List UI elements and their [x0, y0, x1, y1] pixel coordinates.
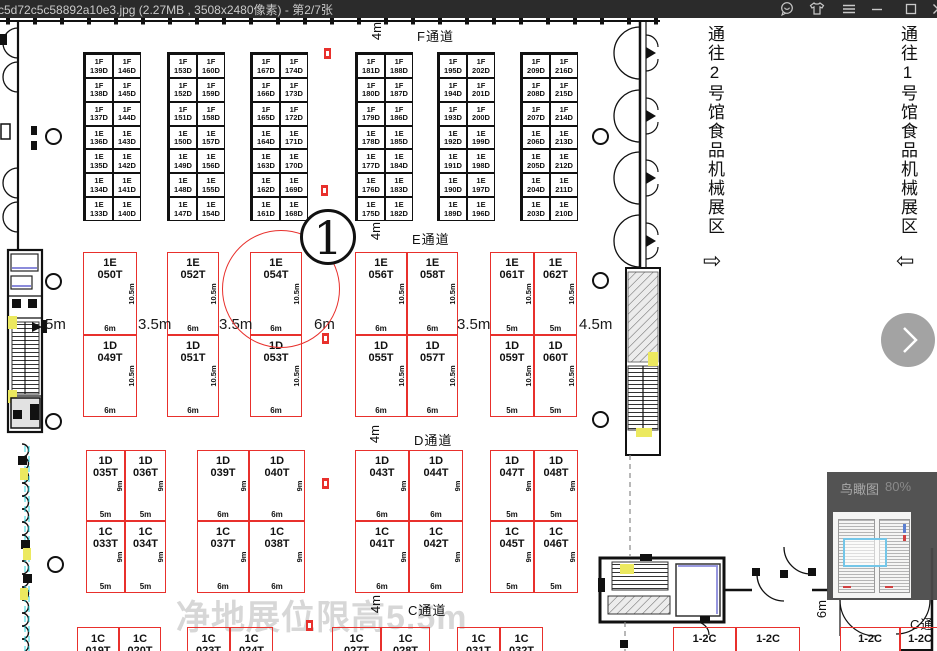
booth-depth-label: 10.5m [397, 365, 406, 386]
booth-cell: 1E205D [522, 149, 550, 173]
booth-cell: 1E185D [385, 126, 413, 150]
booth-label: 1C037T [198, 526, 248, 550]
booth-cell: 1F160D [197, 54, 225, 78]
fire-hydrant-icon [306, 620, 313, 631]
navigator-viewport-rect[interactable] [843, 538, 887, 567]
booth-label: 1E058T [408, 257, 457, 281]
booth-label: 1C038T [250, 526, 304, 550]
booth-label: 1D060T [535, 340, 576, 364]
booth-cell: 1F151D [169, 102, 197, 126]
booth-depth-label: 9m [568, 480, 577, 491]
window-title: c5d72c5c58892a10e3.jpg (2.27MB , 3508x24… [0, 1, 333, 18]
booth-cell: 1F152D [169, 78, 197, 102]
booth-width-label: 5m [87, 582, 124, 591]
booth-width-label: 5m [491, 324, 533, 333]
booth-depth-label: 9m [115, 480, 124, 491]
booth-cell: 1E143D [113, 126, 141, 150]
booth-cell: 1C038T9m6m [249, 521, 305, 593]
image-viewer-window: 净地展位限高5.5m 4m F通道 4m E通道 4m D通道 4m C通道 6… [0, 0, 937, 651]
booth-label: 1D059T [491, 340, 533, 364]
booth-width-label: 6m [408, 406, 457, 415]
booth-cell: 1D043T9m6m [355, 450, 409, 521]
booth-cell: 1E141D [113, 173, 141, 197]
booth-label: 1-2C [841, 633, 899, 645]
booth-depth-label: 9m [156, 480, 165, 491]
booth-cell: 1E155D [197, 173, 225, 197]
booth-depth-label: 9m [453, 480, 462, 491]
booth-cell: 1D040T9m6m [249, 450, 305, 521]
column-circle [45, 413, 62, 430]
booth-width-label: 6m [410, 582, 462, 591]
booth-label: 1D040T [250, 455, 304, 479]
aisle-d-label: D通道 [414, 430, 452, 449]
title-bar[interactable]: c5d72c5c58892a10e3.jpg (2.27MB , 3508x24… [0, 0, 937, 18]
booth-label: 1C031T [458, 633, 499, 651]
booth-width-label: 5m [126, 582, 165, 591]
thumbnail-blue-mark [903, 524, 906, 533]
booth-depth-label: 10.5m [209, 283, 218, 304]
booth-width-label: 5m [535, 582, 577, 591]
booth-depth-label: 9m [399, 552, 408, 563]
booth-cell: 1F215D [550, 78, 578, 102]
booth-cell: 1C028T [381, 627, 430, 651]
booth-depth-label: 9m [239, 480, 248, 491]
booth-cell: 1D035T9m5m [86, 450, 125, 521]
booth-cell: 1F181D [357, 54, 385, 78]
booth-width-label: 5m [126, 510, 165, 519]
booth-width-label: 6m [198, 510, 248, 519]
booth-cell: 1E176D [357, 173, 385, 197]
booth-label: 1D047T [491, 455, 533, 479]
dimension-label: 3.5m [138, 316, 171, 333]
booth-cell: 1F165D [252, 102, 280, 126]
booth-cell: 1E178D [357, 126, 385, 150]
booth-label: 1E061T [491, 257, 533, 281]
aisle-f-dim: 4m [369, 22, 384, 40]
booth-label: 1C024T [231, 633, 272, 651]
booth-cell: 1F208D [522, 78, 550, 102]
booth-cell: 1D048T9m5m [534, 450, 578, 521]
booth-label: 1E050T [84, 257, 136, 281]
booth-cell: 1E204D [522, 173, 550, 197]
booth-cell: 1F200D [467, 102, 495, 126]
booth-width-label: 5m [87, 510, 124, 519]
column-circle [592, 411, 609, 428]
booth-width-label: 6m [168, 324, 218, 333]
booth-width-label: 6m [250, 582, 304, 591]
booth-cell: 1E162D [252, 173, 280, 197]
booth-width-label: 6m [356, 406, 406, 415]
booth-width-label: 5m [535, 406, 576, 415]
booth-depth-label: 10.5m [127, 365, 136, 386]
booth-depth-label: 10.5m [292, 365, 301, 386]
booth-group: 1F167D1F174D1F166D1F173D1F165D1F172D1E16… [250, 52, 308, 221]
booth-depth-label: 9m [524, 480, 533, 491]
booth-depth-label: 10.5m [448, 365, 457, 386]
booth-cell: 1E157D [197, 126, 225, 150]
booth-group: 1F195D1F202D1F194D1F201D1F193D1F200D1E19… [437, 52, 495, 221]
booth-cell: 1F167D [252, 54, 280, 78]
booth-cell: 1F216D [550, 54, 578, 78]
booth-cell: 1F172D [280, 102, 308, 126]
thumbnail-red-mark [885, 586, 893, 588]
booth-cell: 1F207D [522, 102, 550, 126]
fire-hydrant-icon [322, 333, 329, 344]
booth-group: 1F181D1F188D1F180D1F187D1F179D1F186D1E17… [355, 52, 413, 221]
booth-cell: 1F173D [280, 78, 308, 102]
booth-label: 1D057T [408, 340, 457, 364]
booth-cell: 1D051T10.5m6m [167, 335, 219, 417]
booth-cell: 1E149D [169, 149, 197, 173]
booth-depth-label: 9m [295, 480, 304, 491]
booth-cell: 1E058T10.5m6m [407, 252, 458, 335]
thumbnail-red-mark [843, 586, 851, 588]
booth-cell: 1-2C [900, 627, 937, 651]
booth-label: 1D036T [126, 455, 165, 479]
chevron-right-icon [881, 313, 935, 367]
booth-depth-label: 9m [568, 552, 577, 563]
booth-cell: 1E190D [439, 173, 467, 197]
booth-cell: 1F201D [467, 78, 495, 102]
booth-label: 1-2C [901, 633, 937, 645]
booth-cell: 1E133D [85, 197, 113, 221]
booth-label: 1D044T [410, 455, 462, 479]
booth-cell: 1C031T [457, 627, 500, 651]
booth-label: 1C033T [87, 526, 124, 550]
booth-label: 1D051T [168, 340, 218, 364]
booth-cell: 1D059T10.5m5m [490, 335, 534, 417]
feedback-icon[interactable] [779, 1, 795, 17]
booth-cell: 1C027T [332, 627, 381, 651]
fire-hydrant-icon [322, 478, 329, 489]
booth-depth-label: 9m [115, 552, 124, 563]
column-circle [45, 128, 62, 145]
aisle-c-dim: 4m [368, 595, 383, 613]
booth-cell: 1D047T9m5m [490, 450, 534, 521]
booth-cell: 1F153D [169, 54, 197, 78]
booth-depth-label: 9m [239, 552, 248, 563]
booth-group: 1F153D1F160D1F152D1F159D1F151D1F158D1E15… [167, 52, 225, 221]
booth-cell: 1F166D [252, 78, 280, 102]
booth-label: 1E056T [356, 257, 406, 281]
next-image-button[interactable] [881, 313, 935, 367]
booth-label: 1C042T [410, 526, 462, 550]
booth-cell: 1E154D [197, 197, 225, 221]
booth-depth-label: 9m [453, 552, 462, 563]
column-circle [45, 273, 62, 290]
booth-cell: 1E052T10.5m6m [167, 252, 219, 335]
booth-label: 1C032T [501, 633, 542, 651]
booth-cell: 1E197D [467, 173, 495, 197]
fire-hydrant-icon [321, 185, 328, 196]
booth-cell: 1E198D [467, 149, 495, 173]
minimize-button[interactable] [869, 1, 885, 17]
booth-cell: 1E177D [357, 149, 385, 173]
booth-label: 1C034T [126, 526, 165, 550]
booth-width-label: 6m [84, 324, 136, 333]
booth-width-label: 6m [84, 406, 136, 415]
booth-cell: 1E056T10.5m6m [355, 252, 407, 335]
booth-label: 1D035T [87, 455, 124, 479]
booth-cell: 1F179D [357, 102, 385, 126]
booth-cell: 1D057T10.5m6m [407, 335, 458, 417]
booth-cell: 1-2C [840, 627, 900, 651]
booth-width-label: 6m [410, 510, 462, 519]
booth-cell: 1F174D [280, 54, 308, 78]
booth-depth-label: 9m [524, 552, 533, 563]
booth-width-label: 6m [408, 324, 457, 333]
aisle-e-dim: 4m [368, 222, 383, 240]
booth-cell: 1E184D [385, 149, 413, 173]
booth-cell: 1F144D [113, 102, 141, 126]
booth-cell: 1F214D [550, 102, 578, 126]
booth-depth-label: 10.5m [127, 283, 136, 304]
booth-depth-label: 9m [399, 480, 408, 491]
booth-cell: 1F146D [113, 54, 141, 78]
booth-cell: 1-2C [673, 627, 736, 651]
booth-width-label: 6m [356, 324, 406, 333]
booth-label: 1D043T [356, 455, 408, 479]
booth-cell: 1C045T9m5m [490, 521, 534, 593]
aisle-c-label: C通道 [408, 600, 446, 619]
aisle-e-label: E通道 [412, 229, 450, 248]
booth-label: 1E062T [535, 257, 576, 281]
booth-cell: 1E050T10.5m6m [83, 252, 137, 335]
booth-cell: 1E148D [169, 173, 197, 197]
booth-label: 1C046T [535, 526, 577, 550]
booth-label: 1-2C [737, 633, 799, 645]
booth-label: 1C045T [491, 526, 533, 550]
corridor-arrow-right-icon: ⇨ [703, 248, 721, 274]
booth-group: 1F209D1F216D1F208D1F215D1F207D1F214D1E20… [520, 52, 578, 221]
booth-cell: 1F195D [439, 54, 467, 78]
navigator-title: 鸟瞰图 [840, 479, 879, 498]
close-button[interactable] [930, 1, 937, 17]
booth-cell: 1F193D [439, 102, 467, 126]
booth-label: 1D049T [84, 340, 136, 364]
booth-cell: 1-2C [736, 627, 800, 651]
booth-label: 1C020T [120, 633, 160, 651]
corridor-text-hall2: 通往2号馆食品机械展区 [704, 25, 724, 255]
booth-cell: 1E212D [550, 149, 578, 173]
booth-width-label: 5m [535, 324, 576, 333]
booth-cell: 1E199D [467, 126, 495, 150]
dimension-label: 5m [45, 316, 66, 333]
booth-cell: 1F139D [85, 54, 113, 78]
navigator-panel[interactable]: 鸟瞰图 80% [827, 472, 937, 600]
booth-cell: 1F186D [385, 102, 413, 126]
booth-depth-label: 10.5m [524, 283, 533, 304]
booth-cell: 1E183D [385, 173, 413, 197]
booth-cell: 1E191D [439, 149, 467, 173]
booth-cell: 1C033T9m5m [86, 521, 125, 593]
booth-cell: 1F137D [85, 102, 113, 126]
booth-cell: 1E182D [385, 197, 413, 221]
booth-cell: 1E210D [550, 197, 578, 221]
booth-cell: 1F180D [357, 78, 385, 102]
aisle-f-label: F通道 [417, 26, 454, 45]
booth-label: 1-2C [674, 633, 735, 645]
column-circle [592, 128, 609, 145]
booth-cell: 1E171D [280, 126, 308, 150]
booth-cell: 1E211D [550, 173, 578, 197]
booth-width-label: 5m [535, 510, 577, 519]
booth-cell: 1F159D [197, 78, 225, 102]
booth-cell: 1E203D [522, 197, 550, 221]
booth-cell: 1F187D [385, 78, 413, 102]
corridor-text-hall1: 通往1号馆食品机械展区 [897, 25, 917, 255]
booth-width-label: 5m [491, 406, 533, 415]
booth-label: 1C041T [356, 526, 408, 550]
booth-cell: 1D039T9m6m [197, 450, 249, 521]
corner-aisle-dim: 6m [814, 600, 829, 618]
booth-cell: 1C046T9m5m [534, 521, 578, 593]
booth-label: 1C023T [188, 633, 229, 651]
maximize-button[interactable] [903, 1, 919, 17]
booth-depth-label: 9m [295, 552, 304, 563]
hall-number-badge: 1 [300, 209, 356, 265]
booth-depth-label: 9m [156, 552, 165, 563]
booth-cell: 1C019T [77, 627, 119, 651]
floorplan-image-canvas[interactable]: 净地展位限高5.5m 4m F通道 4m E通道 4m D通道 4m C通道 6… [0, 0, 937, 651]
booth-cell: 1E206D [522, 126, 550, 150]
booth-depth-label: 10.5m [209, 365, 218, 386]
booth-label: 1D048T [535, 455, 577, 479]
booth-cell: 1E213D [550, 126, 578, 150]
booth-cell: 1C024T [230, 627, 273, 651]
booth-depth-label: 10.5m [567, 365, 576, 386]
booth-cell: 1D049T10.5m6m [83, 335, 137, 417]
booth-width-label: 6m [356, 510, 408, 519]
booth-cell: 1E156D [197, 149, 225, 173]
column-circle [47, 556, 64, 573]
booth-cell: 1D055T10.5m6m [355, 335, 407, 417]
aisle-d-dim: 4m [367, 425, 382, 443]
booth-label: 1E052T [168, 257, 218, 281]
booth-cell: 1E147D [169, 197, 197, 221]
booth-width-label: 5m [491, 582, 533, 591]
booth-cell: 1D044T9m6m [409, 450, 463, 521]
booth-cell: 1E189D [439, 197, 467, 221]
fire-hydrant-icon [324, 48, 331, 59]
booth-cell: 1F158D [197, 102, 225, 126]
booth-label: 1C028T [382, 633, 429, 651]
menu-icon[interactable] [841, 1, 857, 17]
booth-cell: 1E170D [280, 149, 308, 173]
booth-cell: 1E169D [280, 173, 308, 197]
booth-width-label: 6m [198, 582, 248, 591]
booth-width-label: 6m [251, 406, 301, 415]
booth-cell: 1E142D [113, 149, 141, 173]
booth-label: 1C019T [78, 633, 118, 651]
booth-depth-label: 10.5m [524, 365, 533, 386]
booth-cell: 1F188D [385, 54, 413, 78]
booth-label: 1D055T [356, 340, 406, 364]
booth-cell: 1E136D [85, 126, 113, 150]
booth-width-label: 6m [356, 582, 408, 591]
booth-width-label: 6m [168, 406, 218, 415]
booth-cell: 1C037T9m6m [197, 521, 249, 593]
booth-cell: 1C042T9m6m [409, 521, 463, 593]
booth-cell: 1E061T10.5m5m [490, 252, 534, 335]
booth-cell: 1E161D [252, 197, 280, 221]
booth-cell: 1C020T [119, 627, 161, 651]
booth-cell: 1C041T9m6m [355, 521, 409, 593]
booth-cell: 1E164D [252, 126, 280, 150]
booth-depth-label: 10.5m [448, 283, 457, 304]
booth-cell: 1D060T10.5m5m [534, 335, 577, 417]
booth-cell: 1E168D [280, 197, 308, 221]
booth-cell: 1F138D [85, 78, 113, 102]
thumbnail-red-mark [903, 535, 906, 541]
booth-depth-label: 10.5m [397, 283, 406, 304]
dimension-label: 4.5m [579, 316, 612, 333]
booth-cell: 1D036T9m5m [125, 450, 166, 521]
navigator-zoom-level: 80% [885, 479, 911, 494]
corridor-arrow-left-icon: ⇦ [896, 248, 914, 274]
booth-cell: 1E140D [113, 197, 141, 221]
booth-cell: 1C023T [187, 627, 230, 651]
column-circle [592, 272, 609, 289]
navigator-thumbnail[interactable] [833, 512, 911, 598]
booth-cell: 1E163D [252, 149, 280, 173]
booth-cell: 1E134D [85, 173, 113, 197]
booth-label: 1C027T [333, 633, 380, 651]
booth-cell: 1F194D [439, 78, 467, 102]
booth-cell: 1F145D [113, 78, 141, 102]
dimension-label: 3.5m [457, 316, 490, 333]
booth-depth-label: 10.5m [567, 283, 576, 304]
booth-width-label: 5m [491, 510, 533, 519]
booth-cell: 1E135D [85, 149, 113, 173]
booth-cell: 1E192D [439, 126, 467, 150]
booth-label: 1D039T [198, 455, 248, 479]
booth-width-label: 6m [250, 510, 304, 519]
skin-theme-icon[interactable] [809, 1, 825, 17]
booth-group: 1F139D1F146D1F138D1F145D1F137D1F144D1E13… [83, 52, 141, 221]
booth-cell: 1C032T [500, 627, 543, 651]
booth-cell: 1C034T9m5m [125, 521, 166, 593]
booth-cell: 1E150D [169, 126, 197, 150]
booth-cell: 1E062T10.5m5m [534, 252, 577, 335]
booth-cell: 1E196D [467, 197, 495, 221]
booth-cell: 1F202D [467, 54, 495, 78]
booth-cell: 1E175D [357, 197, 385, 221]
booth-cell: 1F209D [522, 54, 550, 78]
